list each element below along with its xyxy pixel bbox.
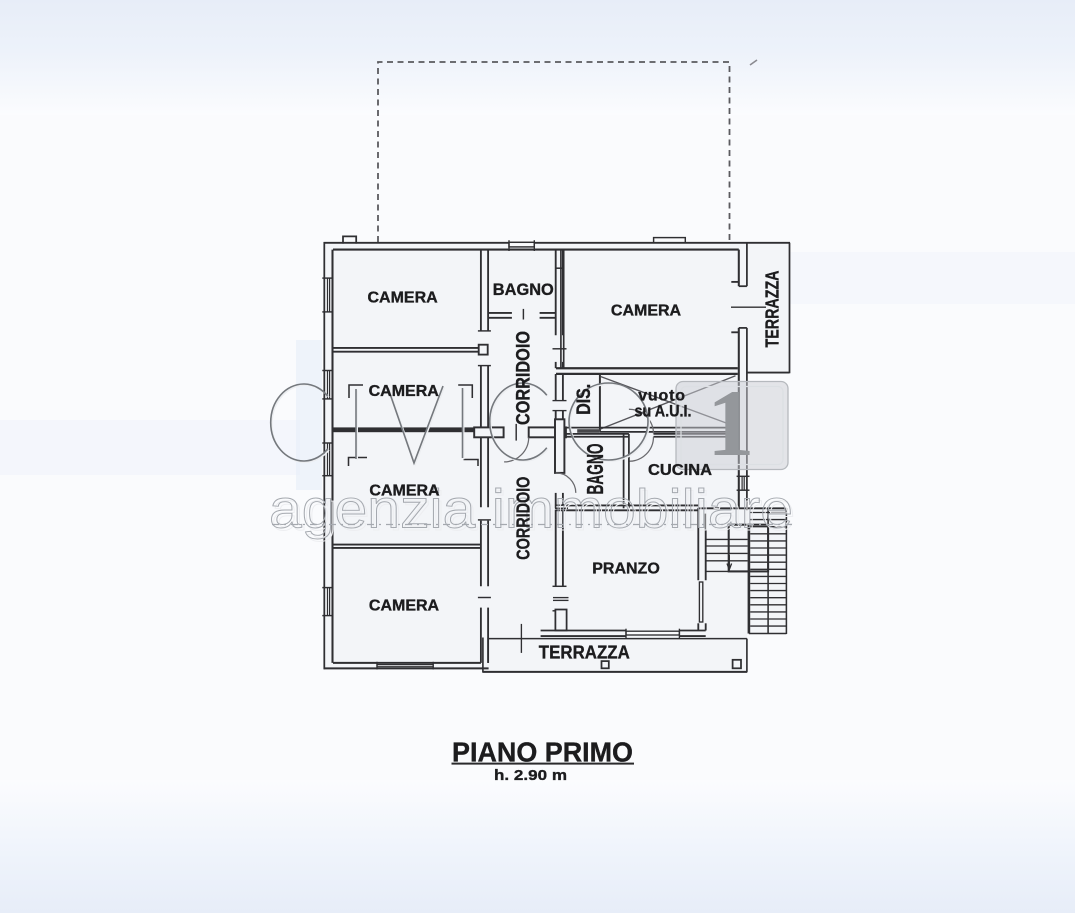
svg-text:CUCINA: CUCINA <box>648 462 712 479</box>
svg-text:TERRAZZA: TERRAZZA <box>763 271 783 348</box>
svg-text:CAMERA: CAMERA <box>369 598 440 615</box>
svg-text:CORRIDOIO: CORRIDOIO <box>512 477 533 560</box>
svg-text:h. 2.90 m: h. 2.90 m <box>494 767 567 784</box>
svg-text:TERRAZZA: TERRAZZA <box>539 643 630 663</box>
svg-text:DIS.: DIS. <box>574 384 595 415</box>
svg-text:CAMERA: CAMERA <box>369 482 440 499</box>
svg-text:CORRIDOIO: CORRIDOIO <box>513 331 534 425</box>
svg-text:PRANZO: PRANZO <box>592 561 660 578</box>
svg-text:CAMERA: CAMERA <box>369 383 440 400</box>
svg-text:su A.U.I.: su A.U.I. <box>635 402 692 420</box>
svg-text:BAGNO: BAGNO <box>582 444 608 495</box>
svg-text:CAMERA: CAMERA <box>611 302 682 319</box>
svg-text:1: 1 <box>707 370 755 476</box>
svg-text:CAMERA: CAMERA <box>367 290 438 307</box>
svg-text:BAGNO: BAGNO <box>493 280 554 299</box>
